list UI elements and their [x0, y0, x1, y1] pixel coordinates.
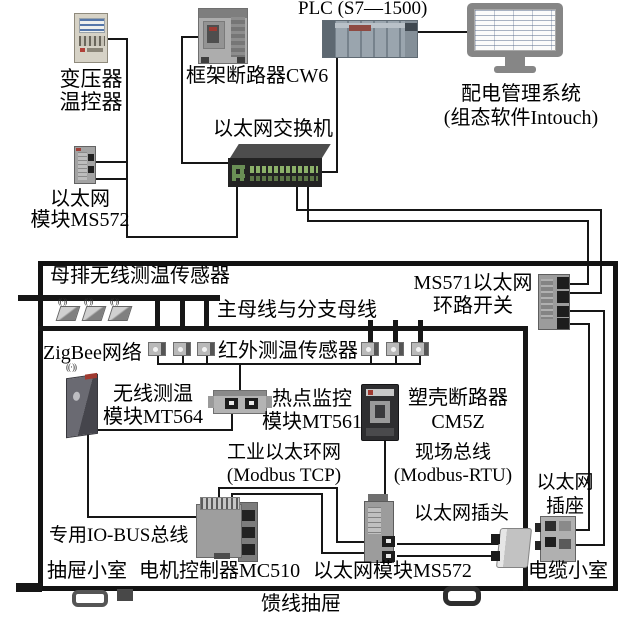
drawer-latch — [117, 589, 133, 601]
mc510-body — [196, 504, 242, 558]
ir-sensor — [197, 342, 215, 356]
bottom-bus-stub — [16, 583, 42, 592]
mc510-bottom-port — [214, 553, 230, 559]
label-ir-sensors: 红外测温传感器 — [218, 340, 358, 363]
ms571-port — [557, 318, 569, 329]
label-frame-breaker-cw6: 框架断路器CW6 — [186, 65, 328, 88]
ms571-loop-switch-device — [538, 274, 570, 330]
label-mt561: 热点监控 模块MT561 — [258, 388, 366, 434]
ir-sensor — [173, 342, 191, 356]
ms571-front — [541, 279, 553, 319]
controller-screen — [79, 18, 105, 33]
cm5z-bottom-strip — [366, 428, 394, 436]
wire — [296, 186, 298, 211]
label-cable-compartment: 电缆小室 — [528, 560, 608, 583]
main-busbar — [18, 295, 220, 301]
wire — [336, 57, 338, 173]
socket-tab — [535, 541, 541, 550]
monitor-screen — [474, 9, 556, 51]
label-cm5z: 塑壳断路器 CM5Z — [402, 386, 514, 434]
plug-pin — [491, 534, 500, 544]
label-ring-network: 工业以太环网 (Modbus TCP) — [220, 441, 348, 487]
mc510-connector — [242, 510, 255, 521]
drawer-handle — [72, 590, 108, 607]
mt564-device — [66, 374, 98, 438]
wire — [296, 209, 602, 211]
switch-led-block — [232, 165, 245, 181]
scada-monitor — [467, 3, 563, 78]
mt561-side-tab — [208, 396, 214, 408]
ir-sensor — [411, 342, 429, 356]
mt561-port — [245, 398, 258, 409]
mc510-terminal-strip — [200, 497, 240, 510]
module-port — [88, 154, 94, 161]
mt561-port — [225, 398, 238, 409]
label-main-bus: 主母线与分支母线 — [217, 299, 377, 322]
antenna-icon: ((·)) — [58, 297, 66, 306]
ms571-port — [557, 277, 569, 289]
ethernet-module-ms572-bottom-device — [362, 494, 400, 564]
label-ethernet-plug: 以太网插头 — [414, 503, 509, 524]
ir-sensor — [386, 342, 404, 356]
socket-cell — [559, 539, 571, 549]
mt561-port-pin — [229, 401, 234, 405]
label-mt564: 无线测温 模块MT564 — [99, 383, 207, 429]
label-plc: PLC (S7—1500) — [298, 0, 427, 19]
plc-accent-module — [349, 25, 371, 31]
label-ethernet-socket: 以太网 插座 — [528, 471, 602, 519]
mt561-port-pin — [249, 401, 254, 405]
ir-sensor-lens — [366, 347, 371, 352]
wire — [418, 31, 468, 33]
ir-sensor-band — [399, 343, 403, 355]
breaker-red-mark — [209, 27, 217, 31]
module-red-tick — [76, 148, 81, 151]
ir-sensor-band — [210, 343, 214, 355]
mt564-top-chip — [85, 373, 97, 380]
label-drawer-compartment: 抽屉小室 — [47, 560, 127, 583]
label-feeder-drawer: 馈线抽屉 — [261, 593, 341, 616]
module-front — [78, 152, 87, 180]
plc-right-cap-top — [405, 23, 417, 31]
label-ethernet-switch: 以太网交换机 — [213, 118, 333, 141]
ir-sensor-band — [374, 343, 378, 355]
ms572b-port-pin — [386, 554, 391, 558]
socket-tab — [535, 523, 541, 532]
label-ms571-loop-switch: MS571以太网 环路开关 — [406, 272, 540, 318]
frame-breaker-cw6-device — [198, 8, 248, 64]
ms571-port — [557, 291, 569, 303]
label-transformer-controller: 变压器 温控器 — [56, 68, 126, 114]
wire — [126, 236, 238, 238]
mc510-connector — [242, 544, 255, 555]
wire — [181, 162, 229, 164]
wire — [181, 36, 183, 164]
switch-top-face — [230, 144, 331, 158]
label-scada: 配电管理系统 (组态软件Intouch) — [430, 82, 612, 130]
wire — [307, 186, 309, 222]
breaker-foot — [201, 57, 209, 63]
ethernet-switch-device — [226, 142, 324, 188]
transformer-controller-device — [74, 13, 108, 63]
switch-front-face — [228, 158, 322, 187]
ir-sensor-band — [161, 343, 165, 355]
label-ethernet-module-top: 以太网 模块MS572 — [18, 189, 142, 231]
antenna-icon: ((·)) — [110, 297, 118, 306]
ms572b-port — [382, 536, 395, 547]
breaker-side-column — [231, 17, 245, 57]
label-busbar-sensors: 母排无线测温传感器 — [50, 265, 230, 288]
cm5z-toggle — [375, 405, 385, 418]
wire — [108, 38, 128, 40]
drawer-handle — [443, 586, 481, 606]
ethernet-socket-device — [535, 515, 577, 563]
switch-port-row — [250, 176, 318, 181]
cabinet-divider-horizontal — [38, 326, 528, 331]
plc-left-cap — [323, 21, 335, 57]
ir-sensor-band — [424, 343, 428, 355]
breaker-foot — [237, 57, 245, 63]
antenna-icon: ((·)) — [84, 297, 92, 306]
ir-sensor-lens — [391, 347, 396, 352]
socket-cell — [545, 537, 556, 547]
ir-sensor — [361, 342, 379, 356]
controller-keys — [79, 36, 105, 46]
ir-sensor-lens — [178, 347, 183, 352]
plug-body — [496, 528, 532, 568]
ethernet-module-ms572-top-device — [74, 146, 96, 184]
switch-port-row — [250, 166, 318, 173]
diagram-canvas: ((·)) ((·)) ((·)) ((·)) — [0, 0, 634, 618]
monitor-base — [494, 66, 536, 73]
ms571-port — [557, 306, 569, 317]
socket-cell — [545, 521, 556, 531]
cm5z-breaker-device — [361, 384, 399, 441]
wire — [96, 178, 128, 180]
ms572b-front — [368, 507, 381, 534]
label-mc510: 电机控制器MC510 — [139, 560, 300, 583]
label-ethernet-module-bottom: 以太网模块MS572 — [313, 560, 472, 583]
ir-sensor-lens — [202, 347, 207, 352]
mc510-motor-controller-device — [196, 495, 260, 565]
ir-sensor — [148, 342, 166, 356]
label-io-bus: 专用IO-BUS总线 — [49, 525, 188, 546]
mc510-connector — [242, 527, 255, 538]
label-zigbee-network: ZigBee网络 — [43, 342, 142, 365]
ethernet-plug-device — [491, 527, 533, 569]
wire — [307, 220, 589, 222]
wire — [236, 186, 238, 238]
controller-led — [80, 48, 85, 52]
ms572b-port-pin — [386, 539, 391, 543]
wire — [96, 161, 128, 163]
socket-cell — [559, 521, 571, 531]
plc-rack-device — [322, 20, 418, 58]
label-fieldbus: 现场总线 (Modbus-RTU) — [387, 441, 519, 487]
ir-sensor-lens — [153, 347, 158, 352]
plug-pin — [491, 551, 500, 561]
controller-buttons — [87, 48, 103, 52]
ir-sensor-lens — [416, 347, 421, 352]
cm5z-red-dot — [368, 390, 373, 395]
ir-sensor-band — [186, 343, 190, 355]
mt564-face-dot — [73, 391, 80, 401]
module-port — [88, 166, 94, 173]
